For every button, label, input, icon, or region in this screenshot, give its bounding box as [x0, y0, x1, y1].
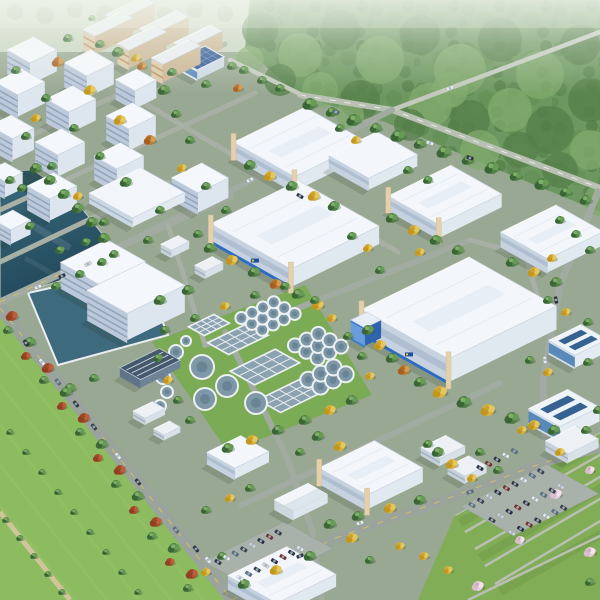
tree-highlight	[247, 161, 251, 165]
sign-logo	[252, 260, 254, 262]
tree-highlight	[478, 449, 481, 452]
tree-highlight	[518, 537, 521, 540]
tree-highlight	[204, 507, 207, 510]
tank-center	[271, 322, 276, 327]
tree-highlight	[433, 236, 437, 240]
tree-highlight	[229, 256, 233, 260]
tree-highlight	[150, 533, 153, 536]
tree-highlight	[387, 504, 391, 508]
tree-highlight	[8, 430, 10, 432]
tree-highlight	[349, 534, 353, 538]
tree-highlight	[531, 268, 535, 272]
tree-highlight	[398, 543, 401, 546]
stair-tower	[386, 187, 391, 213]
tank-center	[249, 321, 254, 326]
tree-highlight	[204, 569, 207, 572]
tank-center	[317, 370, 324, 377]
tree-highlight	[157, 296, 161, 300]
tree-highlight	[389, 354, 393, 358]
tree-highlight	[440, 148, 445, 153]
tree-highlight	[27, 338, 31, 342]
tree-highlight	[306, 100, 311, 105]
tank-center	[260, 327, 265, 332]
tree-highlight	[78, 271, 81, 274]
tree-highlight	[553, 278, 557, 282]
tree-highlight	[104, 550, 106, 552]
tree-highlight	[583, 196, 587, 200]
tree-highlight	[563, 188, 567, 192]
tank-center	[250, 310, 255, 315]
tree-highlight	[100, 259, 103, 262]
tree-highlight	[411, 226, 415, 230]
tree-highlight	[9, 312, 13, 316]
tree-highlight	[422, 553, 425, 556]
stair-tower	[317, 459, 322, 486]
tree-highlight	[24, 450, 26, 452]
tree-highlight	[72, 510, 74, 512]
tree-highlight	[455, 246, 459, 250]
tree-highlight	[531, 421, 535, 425]
tree-highlight	[331, 202, 335, 206]
tree-highlight	[225, 444, 229, 448]
tank-center	[281, 317, 286, 322]
tank-center	[292, 342, 298, 348]
tree-highlight	[446, 567, 449, 570]
tree-highlight	[207, 244, 211, 248]
tank-center	[327, 337, 333, 343]
tree-highlight	[346, 333, 349, 336]
tree-highlight	[61, 190, 65, 194]
atmosphere-haze	[0, 0, 600, 95]
tree-highlight	[295, 290, 299, 294]
tree-highlight	[251, 268, 255, 272]
tank-center	[271, 300, 276, 305]
tree-highlight	[588, 579, 591, 582]
tree-highlight	[298, 449, 301, 452]
tank-center	[305, 376, 312, 383]
tree-highlight	[302, 416, 306, 420]
tank-center	[184, 339, 188, 343]
tree-highlight	[220, 553, 223, 556]
tree-highlight	[311, 192, 315, 196]
tank-center	[330, 364, 337, 371]
tree-highlight	[574, 231, 577, 234]
tree-highlight	[267, 172, 271, 176]
tree-highlight	[588, 467, 591, 470]
tree-highlight	[45, 364, 49, 368]
tree-highlight	[4, 518, 6, 520]
car	[543, 356, 547, 363]
tank-center	[338, 344, 344, 350]
tree-highlight	[102, 219, 105, 222]
tree-highlight	[224, 207, 227, 210]
stair-tower	[231, 133, 236, 160]
tree-highlight	[76, 193, 79, 196]
tree-highlight	[355, 512, 359, 516]
aerial-rendering-canvas: Aerial rendering of an industrial park c…	[0, 0, 600, 600]
tree-highlight	[28, 223, 31, 226]
tree-highlight	[508, 414, 513, 419]
stair-tower	[446, 352, 451, 389]
tree-highlight	[54, 283, 57, 286]
industrial-park-aerial-view: Aerial rendering of an industrial park c…	[0, 0, 600, 600]
tree-highlight	[435, 448, 439, 452]
tree-highlight	[40, 470, 42, 472]
tree-highlight	[56, 490, 58, 492]
tree-highlight	[60, 590, 62, 592]
tank-center	[260, 316, 265, 321]
tree-highlight	[315, 432, 319, 436]
tree-highlight	[117, 466, 121, 470]
tree-highlight	[176, 397, 179, 400]
tree-highlight	[44, 95, 47, 98]
tree-highlight	[120, 570, 122, 572]
tree-highlight	[249, 436, 253, 440]
tree-highlight	[558, 217, 561, 220]
tank-center	[326, 349, 332, 355]
stair-tower	[365, 488, 370, 515]
tree-highlight	[528, 357, 531, 360]
tank-center	[222, 381, 232, 391]
tree-highlight	[180, 165, 183, 168]
tree-highlight	[47, 176, 51, 180]
tree-highlight	[354, 137, 357, 140]
tree-highlight	[551, 426, 555, 430]
tree-highlight	[417, 496, 421, 500]
tree-highlight	[550, 255, 553, 258]
tree-highlight	[223, 303, 226, 306]
tree-highlight	[135, 492, 139, 496]
tank-center	[200, 394, 210, 404]
tank-center	[197, 362, 208, 373]
tree-highlight	[84, 239, 87, 242]
tank-center	[165, 390, 170, 395]
tree-highlight	[538, 180, 543, 185]
tree-highlight	[132, 507, 135, 510]
tree-highlight	[513, 172, 517, 176]
tree-highlight	[546, 369, 549, 372]
tree-highlight	[88, 530, 90, 532]
tree-highlight	[449, 460, 453, 464]
tank-center	[292, 311, 297, 316]
tree-highlight	[475, 582, 479, 586]
tank-center	[315, 355, 321, 361]
tree-highlight	[377, 341, 381, 345]
tank-center	[317, 383, 324, 390]
sign-logo	[406, 353, 408, 355]
tree-highlight	[72, 125, 75, 128]
tree-highlight	[189, 570, 193, 574]
tree-highlight	[596, 407, 599, 410]
tree-highlight	[20, 185, 23, 188]
tree-highlight	[349, 396, 353, 400]
tree-highlight	[81, 414, 85, 418]
tank-center	[271, 311, 276, 316]
tree-highlight	[153, 518, 157, 522]
tank-center	[342, 371, 349, 378]
tree-highlight	[228, 495, 231, 498]
tree-highlight	[394, 132, 399, 137]
tree-highlight	[378, 267, 381, 270]
tree-highlight	[389, 214, 393, 218]
tree-highlight	[147, 136, 151, 140]
tree-highlight	[117, 116, 121, 120]
tree-highlight	[587, 548, 591, 552]
tree-highlight	[488, 164, 493, 169]
tank-center	[303, 349, 309, 355]
tree-highlight	[273, 566, 277, 570]
tree-highlight	[75, 204, 79, 208]
tree-highlight	[163, 327, 166, 330]
tree-highlight	[196, 231, 199, 234]
tree-highlight	[188, 417, 191, 420]
tree-highlight	[546, 297, 549, 300]
tree-highlight	[96, 455, 99, 458]
tank-center	[304, 337, 310, 343]
tree-highlight	[92, 375, 95, 378]
tree-highlight	[42, 377, 45, 380]
tree-highlight	[46, 572, 48, 574]
tank-center	[260, 305, 265, 310]
tree-highlight	[368, 373, 371, 376]
tree-highlight	[330, 315, 333, 318]
tree-highlight	[401, 366, 405, 370]
tree-highlight	[24, 133, 27, 136]
tree-highlight	[417, 140, 421, 144]
tank-center	[282, 306, 287, 311]
tree-highlight	[171, 544, 175, 548]
tree-highlight	[436, 388, 441, 393]
tree-highlight	[34, 115, 37, 118]
tree-highlight	[33, 164, 37, 168]
tree-highlight	[174, 111, 177, 114]
tree-highlight	[78, 429, 81, 432]
tree-highlight	[24, 353, 27, 356]
tree-highlight	[253, 292, 256, 295]
tree-highlight	[460, 398, 465, 403]
tank-center	[330, 377, 337, 384]
tree-highlight	[417, 378, 421, 382]
tank-center	[173, 349, 179, 355]
tree-highlight	[426, 177, 429, 180]
tree-highlight	[307, 552, 311, 556]
tree-highlight	[186, 585, 189, 588]
tree-highlight	[89, 218, 93, 222]
tree-highlight	[32, 554, 34, 556]
tree-highlight	[426, 441, 429, 444]
tree-highlight	[283, 283, 286, 286]
tree-highlight	[327, 406, 331, 410]
tank-center	[315, 331, 321, 337]
tree-highlight	[586, 359, 589, 362]
tree-highlight	[248, 485, 251, 488]
tree-highlight	[193, 315, 196, 318]
tree-highlight	[509, 258, 513, 262]
tank-center	[315, 343, 321, 349]
tree-highlight	[123, 178, 127, 182]
tree-highlight	[496, 467, 499, 470]
tree-highlight	[99, 440, 103, 444]
tree-highlight	[289, 182, 293, 186]
tree-highlight	[327, 520, 331, 524]
tree-highlight	[98, 153, 101, 156]
tree-highlight	[584, 427, 587, 430]
tree-highlight	[114, 481, 117, 484]
tree-highlight	[366, 245, 369, 248]
tree-highlight	[586, 319, 589, 322]
tree-highlight	[365, 326, 369, 330]
tree-highlight	[8, 177, 11, 180]
tank-center	[239, 316, 244, 321]
tree-highlight	[520, 427, 523, 430]
tree-highlight	[313, 297, 316, 300]
tree-highlight	[18, 536, 20, 538]
tree-highlight	[204, 183, 207, 186]
tree-highlight	[350, 116, 355, 121]
tree-highlight	[273, 280, 277, 284]
tank-center	[251, 398, 261, 408]
tree-highlight	[63, 388, 67, 392]
tree-highlight	[373, 124, 377, 128]
tree-highlight	[188, 137, 191, 140]
tree-highlight	[484, 406, 489, 411]
tree-highlight	[350, 233, 353, 236]
tree-highlight	[146, 237, 149, 240]
top-haze	[0, 0, 600, 28]
tree-highlight	[558, 449, 561, 452]
tree-highlight	[564, 309, 567, 312]
tree-highlight	[60, 403, 63, 406]
tree-highlight	[166, 377, 169, 380]
stair-tower	[208, 215, 213, 246]
tree-highlight	[418, 249, 421, 252]
tree-highlight	[275, 426, 279, 430]
tree-highlight	[406, 167, 409, 170]
tree-highlight	[168, 559, 171, 562]
tree-highlight	[6, 327, 9, 330]
tree-highlight	[470, 475, 473, 478]
tree-highlight	[588, 247, 591, 250]
tree-highlight	[50, 163, 53, 166]
tree-highlight	[112, 251, 115, 254]
tree-highlight	[101, 234, 105, 238]
tree-highlight	[158, 207, 161, 210]
tree-highlight	[185, 286, 189, 290]
tree-highlight	[58, 247, 61, 250]
tree-highlight	[156, 355, 159, 358]
tree-highlight	[338, 125, 341, 128]
tree-highlight	[368, 557, 371, 560]
tree-highlight	[337, 442, 341, 446]
tree-highlight	[360, 353, 363, 356]
tree-highlight	[136, 590, 138, 592]
